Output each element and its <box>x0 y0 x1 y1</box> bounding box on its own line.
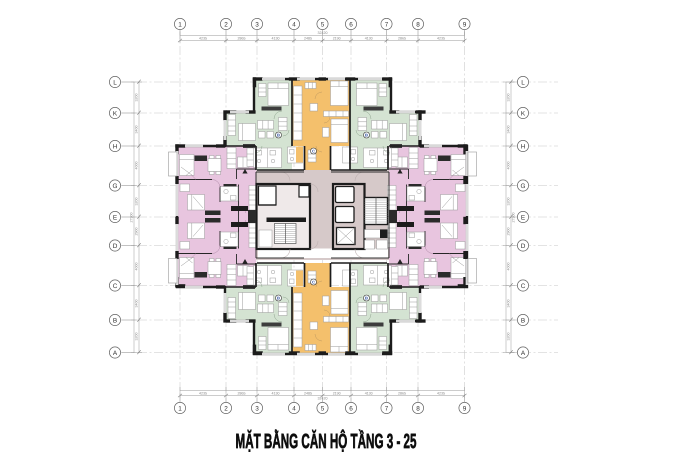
svg-text:4000: 4000 <box>135 263 139 271</box>
svg-text:4130: 4130 <box>272 37 280 41</box>
svg-text:3200: 3200 <box>135 333 139 341</box>
svg-text:5: 5 <box>321 21 325 28</box>
svg-text:3200: 3200 <box>507 198 511 206</box>
svg-text:2865: 2865 <box>398 37 406 41</box>
svg-text:MẶT BẰNG CĂN HỘ TẦNG 3 - 25: MẶT BẰNG CĂN HỘ TẦNG 3 - 25 <box>236 429 417 453</box>
svg-text:K: K <box>521 110 526 117</box>
svg-text:4130: 4130 <box>365 37 373 41</box>
svg-text:D: D <box>113 243 118 250</box>
svg-text:C: C <box>312 279 315 284</box>
svg-text:4000: 4000 <box>135 162 139 170</box>
svg-text:7: 7 <box>385 405 389 412</box>
svg-text:B: B <box>521 317 525 324</box>
svg-text:2865: 2865 <box>238 391 246 395</box>
svg-text:3200: 3200 <box>135 198 139 206</box>
svg-text:27300: 27300 <box>512 213 516 223</box>
svg-text:4130: 4130 <box>272 391 280 395</box>
svg-text:4130: 4130 <box>365 391 373 395</box>
svg-text:C: C <box>312 148 315 153</box>
svg-text:2900: 2900 <box>135 228 139 236</box>
svg-text:27300: 27300 <box>130 213 134 223</box>
svg-text:9: 9 <box>463 405 467 412</box>
svg-text:2190: 2190 <box>333 391 341 395</box>
svg-text:4235: 4235 <box>199 391 207 395</box>
svg-text:3200: 3200 <box>507 94 511 102</box>
svg-text:B: B <box>277 295 280 300</box>
svg-text:6: 6 <box>349 21 353 28</box>
svg-text:4235: 4235 <box>199 37 207 41</box>
svg-text:H: H <box>113 143 118 150</box>
svg-text:4000: 4000 <box>507 263 511 271</box>
svg-text:G: G <box>521 183 526 190</box>
svg-text:9: 9 <box>463 21 467 28</box>
svg-text:G: G <box>113 183 118 190</box>
svg-text:A: A <box>113 350 118 357</box>
svg-text:2900: 2900 <box>507 228 511 236</box>
svg-text:4000: 4000 <box>507 162 511 170</box>
svg-text:C: C <box>521 283 526 290</box>
svg-text:B: B <box>277 132 280 137</box>
svg-text:H: H <box>521 143 526 150</box>
svg-text:2485: 2485 <box>304 37 312 41</box>
svg-text:5: 5 <box>321 405 325 412</box>
svg-text:4235: 4235 <box>437 37 445 41</box>
svg-text:L: L <box>113 79 117 86</box>
svg-text:7: 7 <box>385 21 389 28</box>
svg-text:3200: 3200 <box>135 94 139 102</box>
svg-text:3: 3 <box>255 21 259 28</box>
svg-text:2485: 2485 <box>304 391 312 395</box>
svg-text:3200: 3200 <box>507 333 511 341</box>
svg-text:3: 3 <box>255 405 259 412</box>
svg-text:8: 8 <box>416 21 420 28</box>
svg-text:2190: 2190 <box>333 37 341 41</box>
svg-text:B: B <box>365 132 368 137</box>
svg-text:4: 4 <box>292 405 296 412</box>
svg-text:B: B <box>113 317 117 324</box>
svg-text:3400: 3400 <box>135 300 139 308</box>
svg-text:E: E <box>113 214 117 221</box>
svg-text:4: 4 <box>292 21 296 28</box>
svg-text:4235: 4235 <box>437 391 445 395</box>
svg-text:B: B <box>365 295 368 300</box>
svg-text:L: L <box>521 79 525 86</box>
svg-text:1: 1 <box>178 21 182 28</box>
svg-text:C: C <box>113 283 118 290</box>
svg-text:3400: 3400 <box>507 126 511 134</box>
svg-text:8: 8 <box>416 405 420 412</box>
svg-text:D: D <box>521 243 526 250</box>
svg-text:E: E <box>521 214 525 221</box>
svg-text:2865: 2865 <box>238 37 246 41</box>
svg-text:6: 6 <box>349 405 353 412</box>
svg-text:2865: 2865 <box>398 391 406 395</box>
svg-text:1: 1 <box>178 405 182 412</box>
svg-text:3400: 3400 <box>507 300 511 308</box>
svg-text:2: 2 <box>224 21 228 28</box>
svg-text:3400: 3400 <box>135 126 139 134</box>
svg-text:K: K <box>113 110 118 117</box>
svg-text:A: A <box>521 350 526 357</box>
svg-text:2: 2 <box>224 405 228 412</box>
